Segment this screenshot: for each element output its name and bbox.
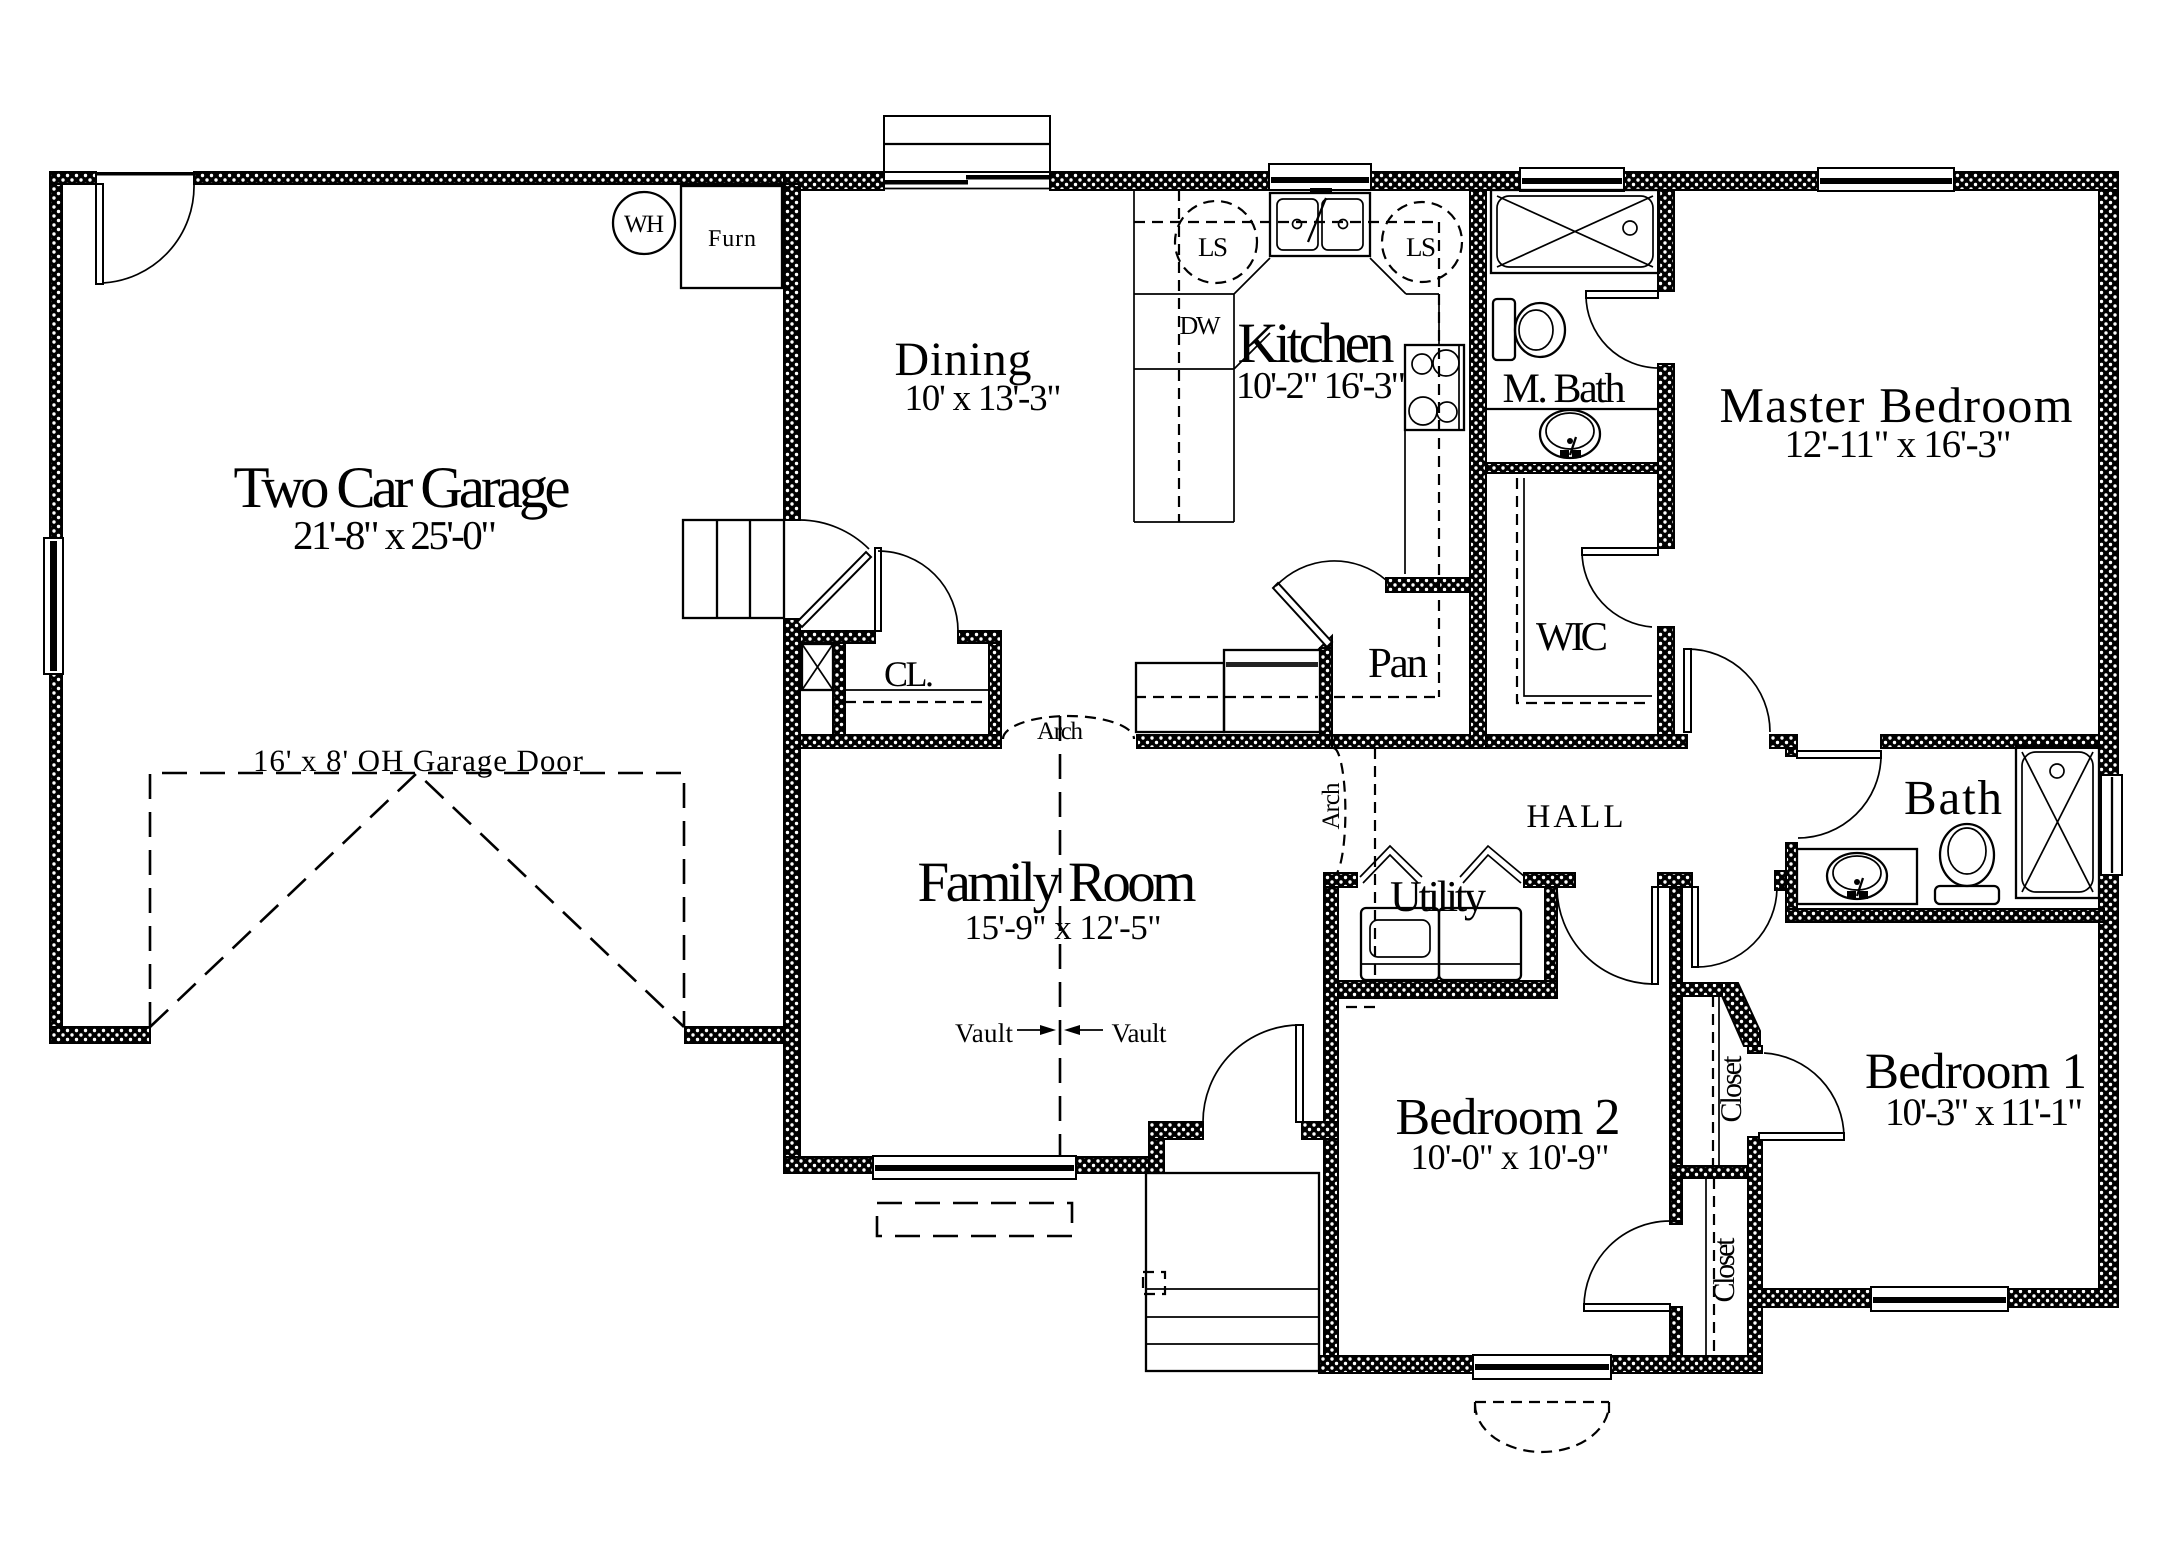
svg-text:CL.: CL. bbox=[884, 654, 934, 694]
svg-text:12'-11" x 16'-3": 12'-11" x 16'-3" bbox=[1785, 423, 2012, 466]
svg-text:15'-9" x 12'-5": 15'-9" x 12'-5" bbox=[965, 908, 1162, 947]
svg-text:Arch: Arch bbox=[1318, 782, 1345, 830]
svg-text:10'-0" x 10'-9": 10'-0" x 10'-9" bbox=[1411, 1137, 1610, 1177]
svg-text:M. Bath: M. Bath bbox=[1503, 366, 1626, 412]
svg-text:10' x 13'-3": 10' x 13'-3" bbox=[905, 378, 1062, 419]
svg-text:Closet: Closet bbox=[1708, 1237, 1741, 1303]
svg-text:Vault: Vault bbox=[955, 1018, 1013, 1048]
svg-text:Pan: Pan bbox=[1368, 640, 1428, 687]
svg-text:Vault: Vault bbox=[1112, 1018, 1167, 1048]
svg-text:10'-3" x 11'-1": 10'-3" x 11'-1" bbox=[1885, 1091, 2083, 1134]
svg-text:Utility: Utility bbox=[1390, 872, 1486, 921]
svg-text:Family Room: Family Room bbox=[918, 851, 1197, 914]
svg-text:DW: DW bbox=[1180, 311, 1221, 340]
svg-text:WH: WH bbox=[624, 211, 664, 238]
svg-text:10'-2" 16'-3": 10'-2" 16'-3" bbox=[1236, 365, 1406, 407]
svg-text:16' x 8' OH Garage Door: 16' x 8' OH Garage Door bbox=[253, 743, 584, 778]
svg-text:LS: LS bbox=[1198, 232, 1228, 262]
svg-text:Arch: Arch bbox=[1037, 718, 1084, 745]
svg-text:Two Car Garage: Two Car Garage bbox=[234, 454, 571, 520]
svg-text:Bath: Bath bbox=[1904, 770, 2002, 825]
svg-text:21'-8" x 25'-0": 21'-8" x 25'-0" bbox=[293, 512, 497, 558]
svg-text:LS: LS bbox=[1406, 232, 1436, 262]
svg-text:Furn: Furn bbox=[708, 226, 756, 252]
svg-text:HALL: HALL bbox=[1527, 799, 1624, 835]
svg-text:WIC: WIC bbox=[1536, 613, 1608, 659]
svg-text:Closet: Closet bbox=[1715, 1055, 1748, 1123]
